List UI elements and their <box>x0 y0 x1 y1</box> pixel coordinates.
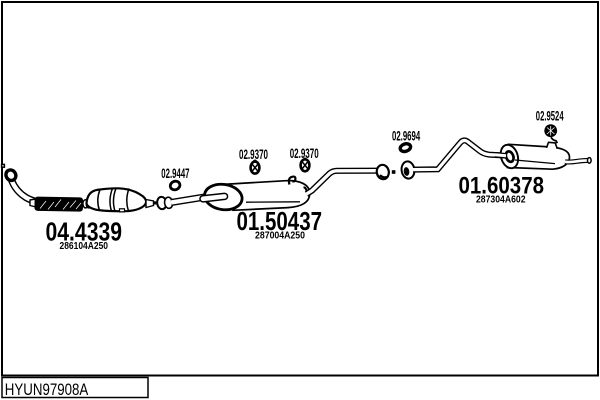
svg-text:287004A250: 287004A250 <box>255 231 305 242</box>
svg-text:287304A602: 287304A602 <box>476 195 526 206</box>
svg-text:02.9524: 02.9524 <box>536 109 564 124</box>
svg-text:02.9370: 02.9370 <box>239 147 268 162</box>
svg-text:286104A250: 286104A250 <box>60 241 109 252</box>
svg-text:02.9447: 02.9447 <box>161 166 189 181</box>
svg-text:HYUN97908A: HYUN97908A <box>5 381 89 399</box>
svg-text:02.9694: 02.9694 <box>392 128 420 143</box>
svg-text:02.9370: 02.9370 <box>290 146 319 161</box>
